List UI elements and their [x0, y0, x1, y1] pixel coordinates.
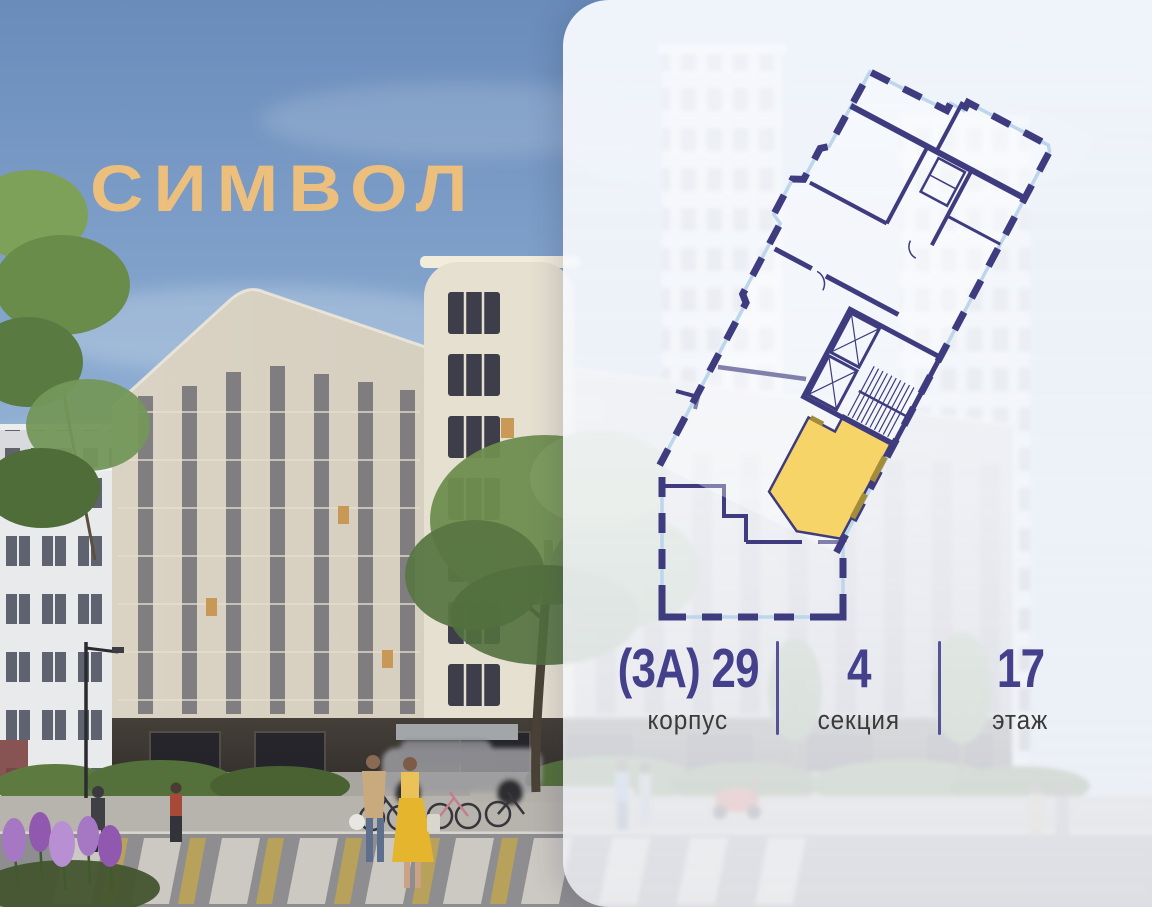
- section-value: 4: [847, 640, 871, 698]
- section-label: секция: [818, 705, 900, 736]
- info-section: 4 секция: [779, 640, 938, 736]
- brand-logo: СИМВОЛ: [90, 150, 478, 226]
- floorplan-tower: [645, 47, 1052, 558]
- divider: [938, 641, 941, 735]
- apartment-selector-screen: СИМВОЛ (3А) 29 корпус 4 секция 17 этаж: [0, 0, 1152, 907]
- floor-value: 17: [997, 640, 1044, 698]
- info-floor: 17 этаж: [941, 640, 1100, 736]
- corpus-value: (3А) 29: [618, 640, 759, 698]
- corpus-label: корпус: [648, 705, 729, 736]
- floorplan: [560, 0, 1152, 907]
- info-corpus: (3А) 29 корпус: [600, 640, 776, 736]
- floor-label: этаж: [993, 705, 1049, 736]
- apartment-info-bar: (3А) 29 корпус 4 секция 17 этаж: [600, 640, 1100, 736]
- divider: [776, 641, 779, 735]
